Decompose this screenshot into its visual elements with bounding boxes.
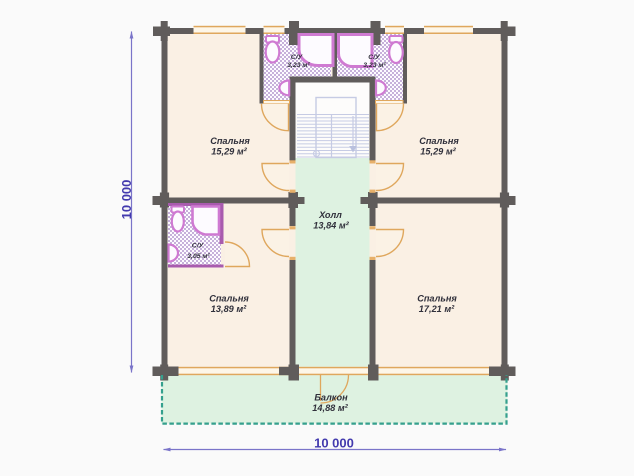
- svg-text:3,23 м²: 3,23 м²: [287, 62, 310, 69]
- svg-text:3,23 м²: 3,23 м²: [363, 62, 386, 69]
- svg-text:Спальня: Спальня: [419, 136, 459, 146]
- svg-text:3,05 м²: 3,05 м²: [187, 253, 210, 260]
- svg-text:10 000: 10 000: [314, 435, 354, 450]
- svg-text:С/У: С/У: [291, 54, 304, 61]
- svg-text:Спальня: Спальня: [210, 136, 250, 146]
- svg-text:Балкон: Балкон: [314, 393, 348, 403]
- svg-text:13,89 м²: 13,89 м²: [211, 304, 247, 314]
- svg-text:14,88 м²: 14,88 м²: [312, 403, 348, 413]
- svg-text:17,21 м²: 17,21 м²: [419, 304, 455, 314]
- svg-text:15,29 м²: 15,29 м²: [211, 147, 247, 157]
- svg-text:Холл: Холл: [318, 210, 342, 220]
- svg-text:15,29 м²: 15,29 м²: [420, 147, 456, 157]
- svg-text:13,84 м²: 13,84 м²: [313, 221, 349, 231]
- svg-text:Спальня: Спальня: [417, 294, 457, 304]
- svg-text:С/У: С/У: [192, 243, 205, 250]
- svg-text:Спальня: Спальня: [209, 294, 249, 304]
- svg-text:10 000: 10 000: [119, 180, 134, 220]
- svg-text:С/У: С/У: [368, 54, 381, 61]
